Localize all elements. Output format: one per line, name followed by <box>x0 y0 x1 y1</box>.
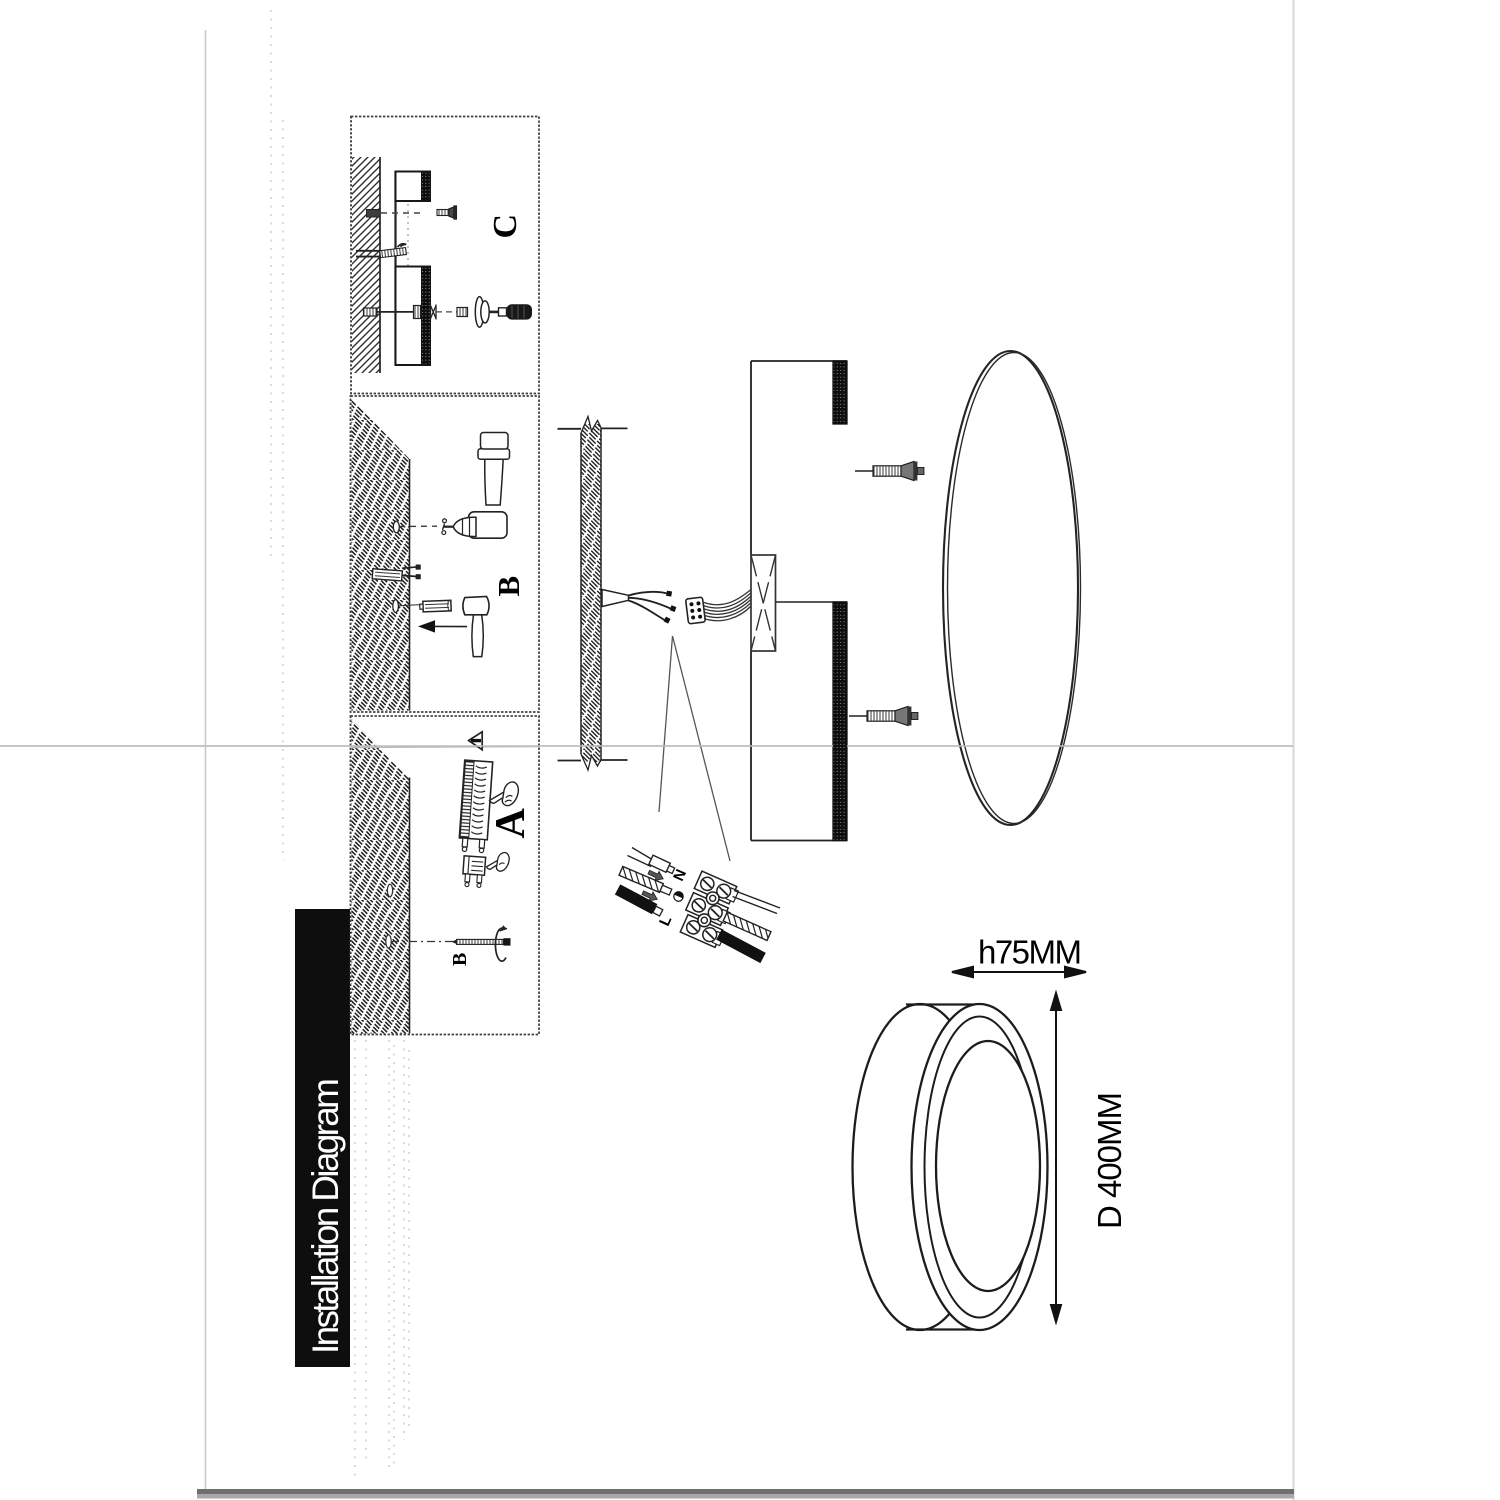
svg-text:B: B <box>491 576 526 597</box>
svg-text:D 400MM: D 400MM <box>1091 1092 1128 1229</box>
svg-text:A: A <box>488 808 534 839</box>
svg-text:B: B <box>449 953 471 966</box>
svg-text:h75MM: h75MM <box>978 934 1082 971</box>
svg-text:Installation Diagram: Installation Diagram <box>305 1078 346 1354</box>
svg-text:C: C <box>487 214 524 239</box>
